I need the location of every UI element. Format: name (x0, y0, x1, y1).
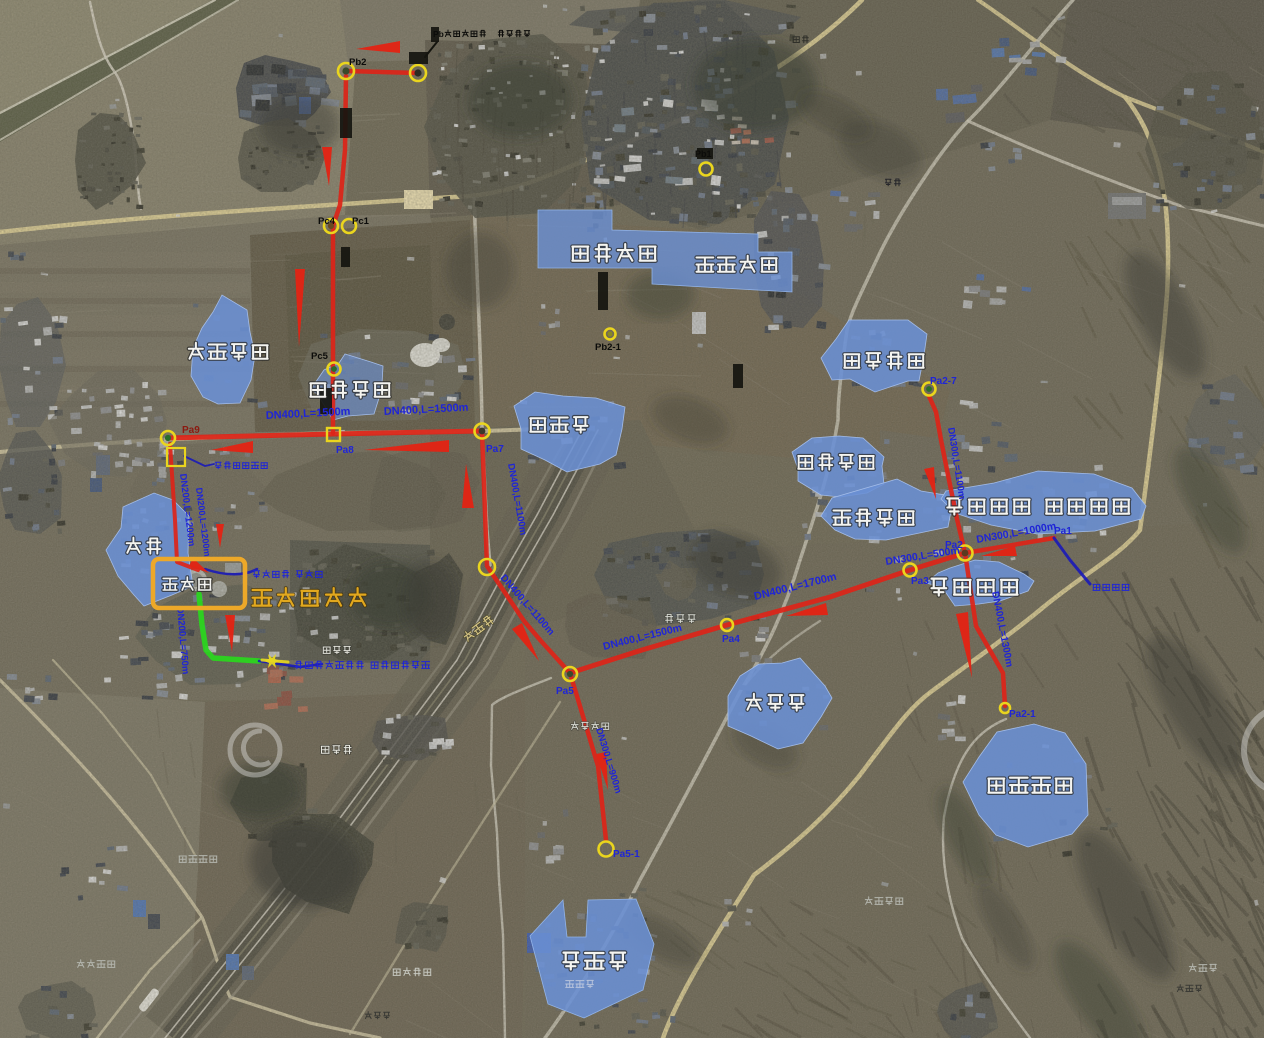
svg-text:Pa9: Pa9 (182, 425, 200, 436)
svg-text:Pa2: Pa2 (945, 540, 963, 551)
svg-text:Pb1: Pb1 (695, 149, 712, 159)
svg-text:Pa3: Pa3 (911, 576, 929, 587)
svg-text:Pa2-7: Pa2-7 (930, 376, 957, 387)
svg-text:Pc5: Pc5 (311, 351, 329, 362)
svg-text:Pc4: Pc4 (318, 216, 336, 227)
svg-text:Pb2: Pb2 (349, 57, 366, 68)
svg-text:Pa2-1: Pa2-1 (1009, 709, 1036, 720)
svg-text:Pa4: Pa4 (722, 634, 740, 645)
svg-text:Pa5-1: Pa5-1 (613, 849, 640, 860)
svg-text:Pc1: Pc1 (352, 216, 370, 227)
svg-text:Pb2-1: Pb2-1 (595, 342, 622, 353)
svg-text:Pa8: Pa8 (336, 445, 354, 456)
svg-text:Pa1: Pa1 (1054, 526, 1072, 537)
svg-text:Pa7: Pa7 (486, 444, 504, 455)
svg-text:Pa5: Pa5 (556, 686, 574, 697)
svg-text:Pb: Pb (433, 29, 444, 39)
